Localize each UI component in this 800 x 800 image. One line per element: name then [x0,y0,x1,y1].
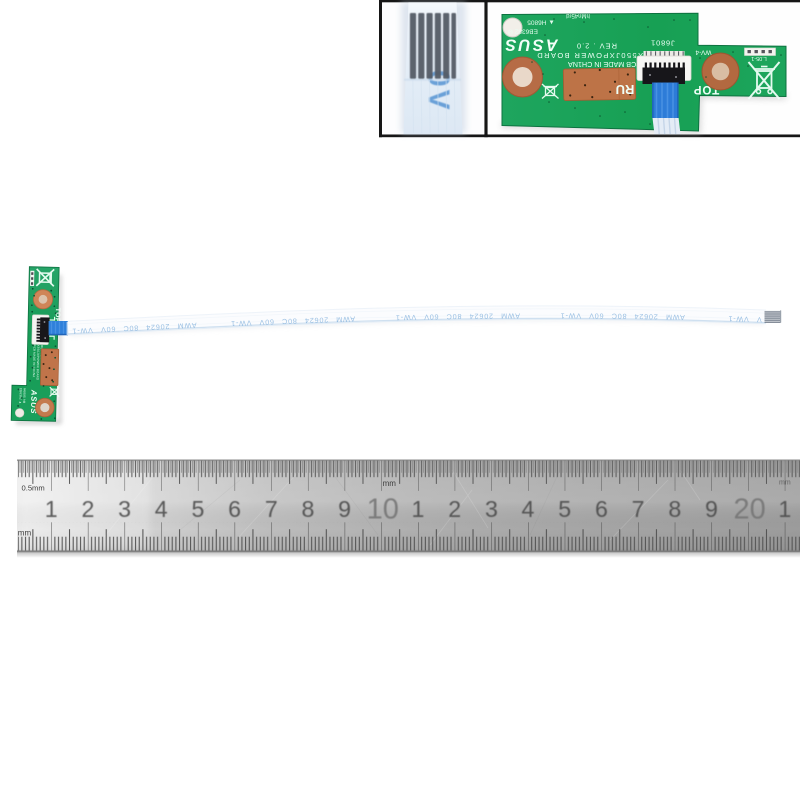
svg-text:4: 4 [155,496,168,522]
svg-text:V VW-1: V VW-1 [728,314,762,324]
svg-text:8: 8 [302,496,315,522]
svg-text:3: 3 [485,496,498,522]
svg-text:▲ H6805: ▲ H6805 [527,19,555,26]
svg-text:mm: mm [383,479,397,488]
svg-text:AWM 20624 80C 60V VW-1: AWM 20624 80C 60V VW-1 [560,311,685,322]
svg-text:9: 9 [338,496,351,522]
svg-text:8: 8 [668,496,681,522]
svg-text:9: 9 [705,496,718,522]
svg-text:20: 20 [733,494,765,526]
svg-text:7: 7 [265,496,278,522]
svg-text:4: 4 [522,496,535,522]
svg-text:WV-4: WV-4 [695,49,711,56]
svg-text:3: 3 [118,496,131,522]
svg-text:5: 5 [191,496,204,522]
svg-text:0.5mm: 0.5mm [22,484,45,493]
svg-text:7: 7 [632,496,645,522]
svg-text:J6801: J6801 [650,39,674,48]
svg-text:EB6382 ▲: EB6382 ▲ [18,388,22,404]
svg-text:1: 1 [412,496,425,522]
svg-text:PCB MADE IN CH1NA: PCB MADE IN CH1NA [568,60,641,69]
svg-text:10: 10 [367,494,399,526]
svg-text:6: 6 [595,496,608,522]
svg-text:H6805 hM: H6805 hM [22,388,26,404]
svg-text:RU: RU [616,82,635,97]
svg-text:6: 6 [228,496,241,522]
svg-text:TOP: TOP [54,308,61,323]
svg-text:mm: mm [18,529,32,538]
svg-text:hMn45rd: hMn45rd [566,12,590,18]
svg-text:2: 2 [81,496,94,522]
svg-text:ASUS: ASUS [503,36,559,54]
svg-text:1: 1 [45,496,58,522]
svg-text:L.05-1: L.05-1 [751,55,767,61]
svg-text:X550JXPOWER BOARD: X550JXPOWER BOARD [36,345,41,381]
svg-text:X550JXPOWER BOARD: X550JXPOWER BOARD [536,51,643,60]
svg-text:REV . 2.0: REV . 2.0 [576,42,617,51]
svg-text:1: 1 [778,496,791,522]
svg-text:2: 2 [448,496,461,522]
svg-text:EB6382 ®: EB6382 ® [508,28,538,36]
svg-text:5: 5 [558,496,571,522]
svg-text:mm: mm [779,480,791,487]
svg-text:WV-4: WV-4 [32,326,36,334]
